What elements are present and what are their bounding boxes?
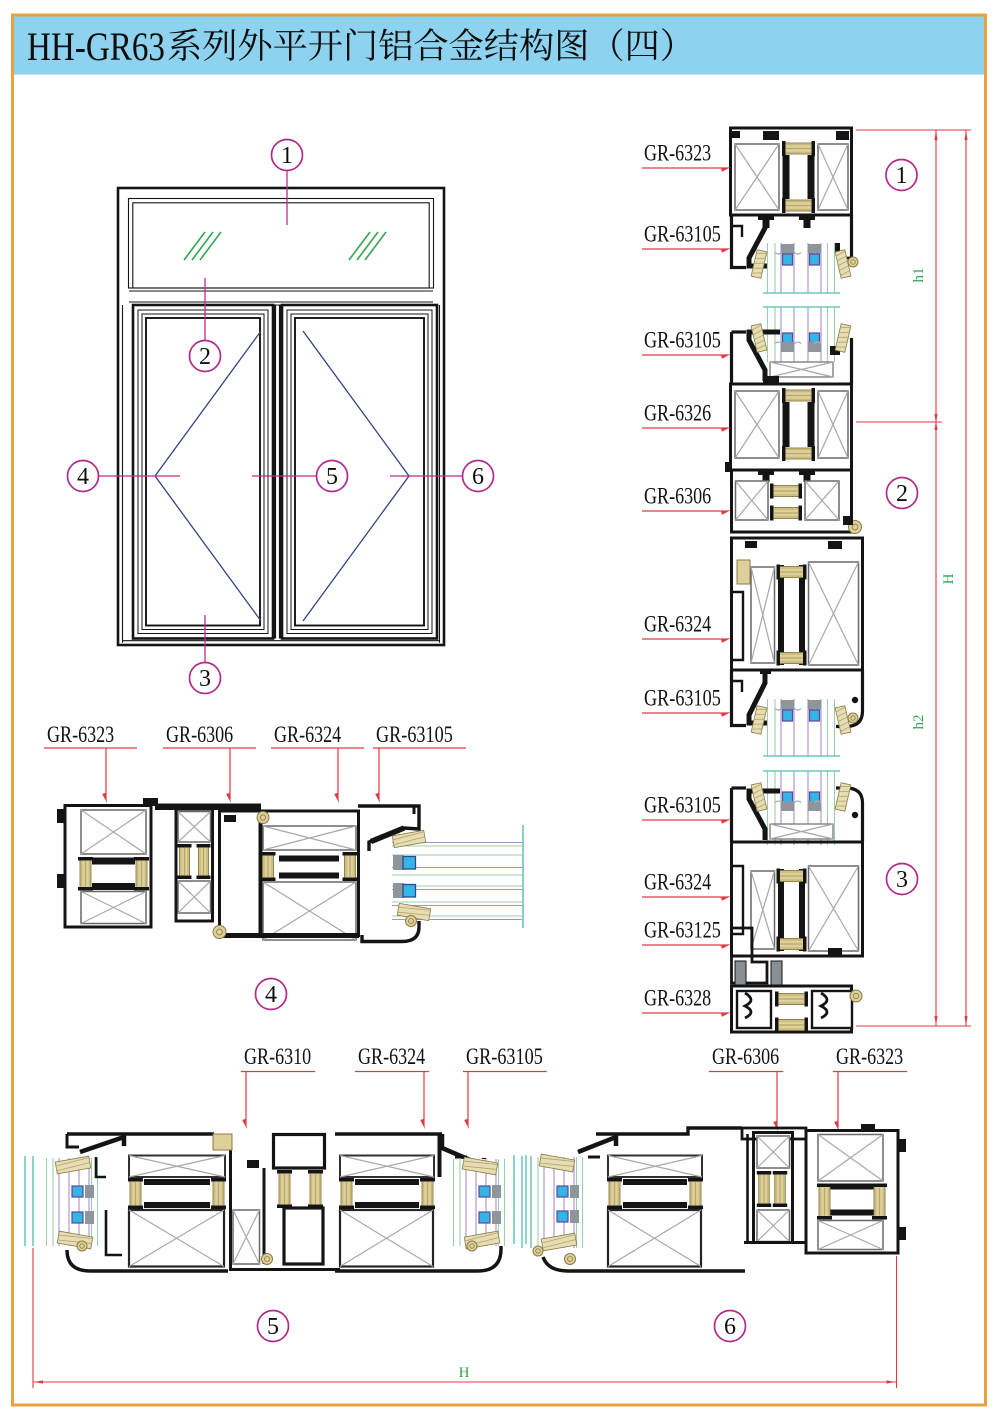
svg-text:HH-GR63: HH-GR63 [27, 24, 165, 69]
svg-text:GR-6324: GR-6324 [358, 1044, 426, 1069]
svg-text:GR-63105: GR-63105 [466, 1044, 543, 1069]
svg-text:GR-6323: GR-6323 [836, 1044, 903, 1069]
svg-text:GR-6324: GR-6324 [274, 722, 342, 747]
svg-text:GR-6324: GR-6324 [644, 870, 712, 895]
svg-text:1: 1 [281, 143, 293, 169]
svg-text:1: 1 [896, 163, 908, 189]
svg-text:GR-63105: GR-63105 [644, 222, 721, 247]
svg-text:GR-6326: GR-6326 [644, 401, 711, 426]
svg-text:4: 4 [77, 464, 89, 490]
svg-text:GR-6306: GR-6306 [712, 1044, 779, 1069]
svg-text:6: 6 [724, 1314, 736, 1340]
svg-text:GR-6323: GR-6323 [644, 141, 711, 166]
svg-text:GR-63125: GR-63125 [644, 918, 721, 943]
svg-text:GR-6328: GR-6328 [644, 986, 711, 1011]
svg-text:GR-6306: GR-6306 [644, 484, 711, 509]
svg-text:2: 2 [896, 481, 908, 507]
svg-text:2: 2 [199, 344, 211, 370]
svg-text:6: 6 [472, 464, 484, 490]
svg-text:3: 3 [896, 867, 908, 893]
svg-text:GR-6323: GR-6323 [47, 722, 114, 747]
svg-text:5: 5 [267, 1314, 279, 1340]
svg-text:5: 5 [326, 464, 338, 490]
svg-text:3: 3 [199, 666, 211, 692]
svg-text:GR-6324: GR-6324 [644, 612, 712, 637]
svg-text:GR-6306: GR-6306 [166, 722, 233, 747]
svg-text:GR-63105: GR-63105 [644, 686, 721, 711]
svg-text:GR-63105: GR-63105 [376, 722, 453, 747]
svg-text:H: H [941, 573, 957, 584]
svg-text:H: H [459, 1365, 470, 1381]
svg-text:GR-63105: GR-63105 [644, 328, 721, 353]
svg-text:GR-6310: GR-6310 [244, 1044, 311, 1069]
svg-text:4: 4 [265, 982, 277, 1008]
svg-text:h1: h1 [911, 268, 927, 283]
svg-text:GR-63105: GR-63105 [644, 793, 721, 818]
svg-text:h2: h2 [911, 715, 927, 730]
